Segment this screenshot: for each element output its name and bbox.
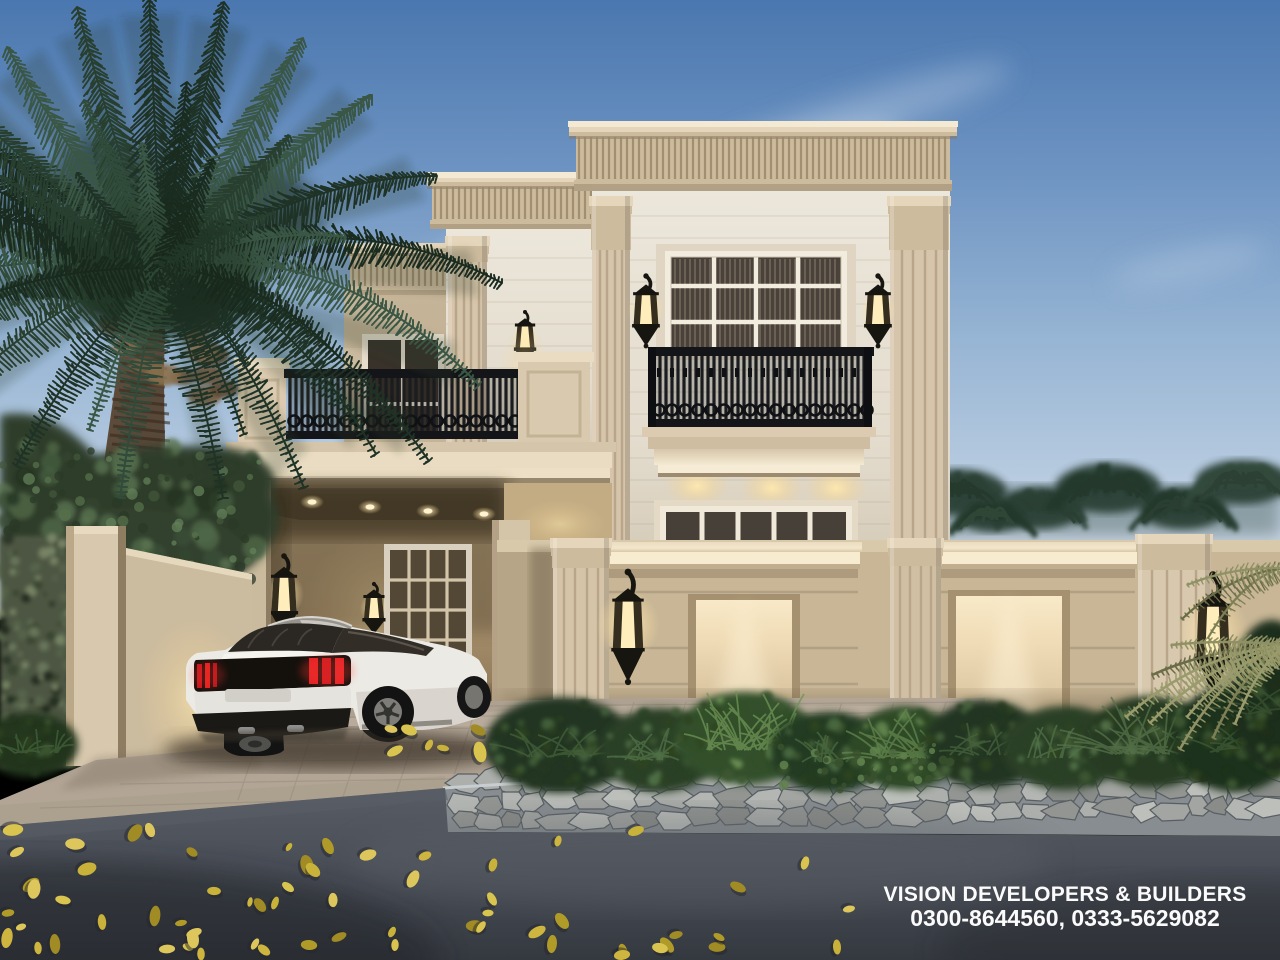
svg-text:0300-8644560, 0333-5629082: 0300-8644560, 0333-5629082 <box>910 905 1220 931</box>
svg-text:VISION DEVELOPERS & BUILDERS: VISION DEVELOPERS & BUILDERS <box>883 883 1246 906</box>
